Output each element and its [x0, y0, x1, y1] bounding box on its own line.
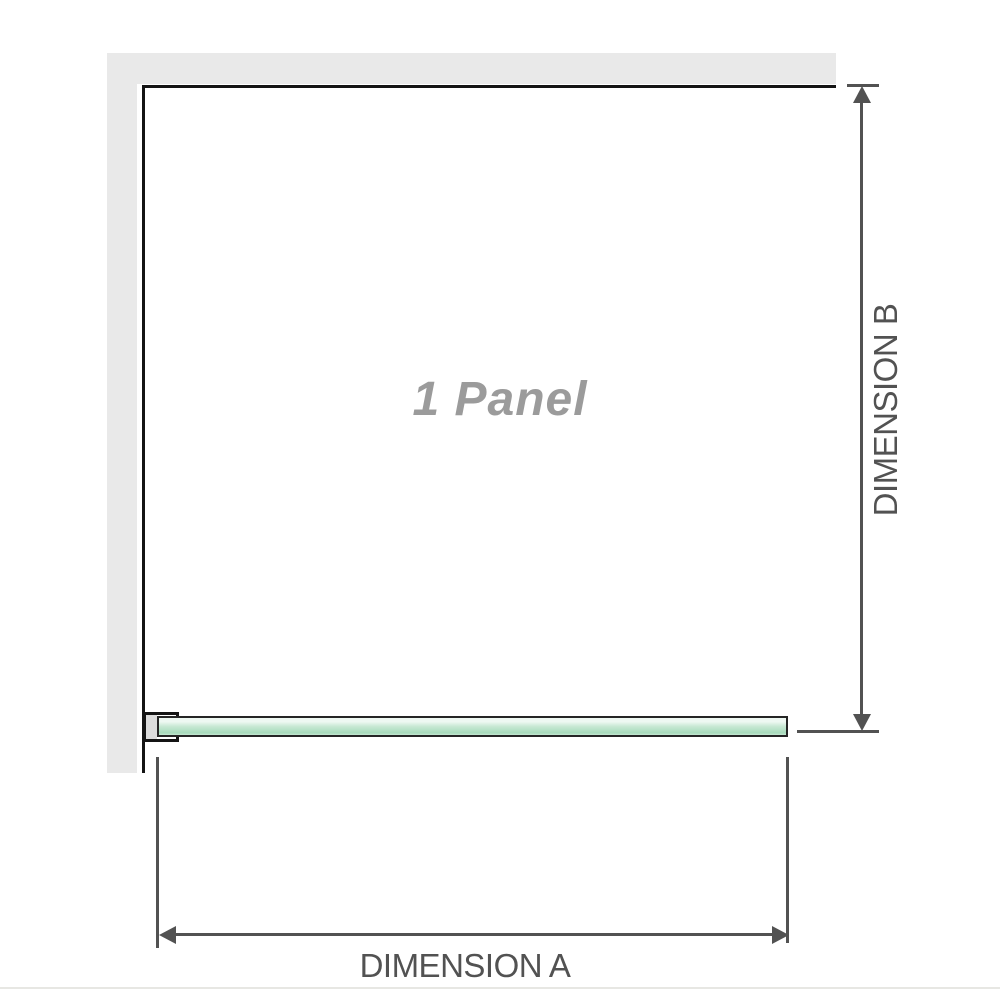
bottom-divider-line — [0, 987, 1000, 989]
bracket-pad — [146, 715, 157, 739]
dimension-a-label: DIMENSION A — [315, 946, 615, 986]
panel-dimension-diagram: 1 Panel DIMENSION B DIMENSION A — [0, 0, 1000, 1000]
arrowhead-right-icon — [772, 926, 789, 944]
wall-edge-left-line — [142, 85, 145, 773]
wall-top — [107, 53, 836, 84]
wall-edge-top-line — [142, 85, 836, 88]
dimension-a-tick-right — [786, 757, 789, 943]
wall-left — [107, 53, 137, 773]
arrowhead-left-icon — [159, 926, 176, 944]
dimension-a-line — [168, 933, 776, 936]
panel-count-label: 1 Panel — [300, 368, 700, 432]
arrowhead-up-icon — [853, 86, 871, 103]
glass-panel — [157, 716, 788, 737]
dimension-a-tick-left — [156, 757, 159, 948]
dimension-b-line — [860, 98, 863, 718]
arrowhead-down-icon — [853, 714, 871, 731]
dimension-b-label: DIMENSION B — [866, 260, 906, 560]
